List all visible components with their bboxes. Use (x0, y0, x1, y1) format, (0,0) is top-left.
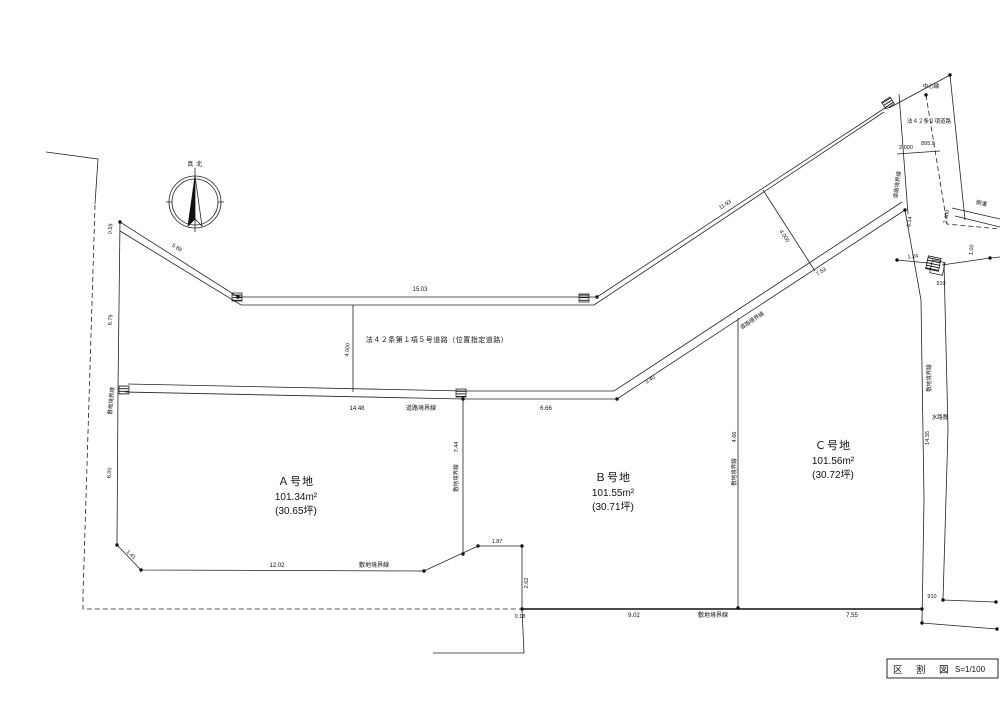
lot-c-east-boundary (905, 210, 924, 623)
bottom-right-line-upper (943, 600, 996, 602)
waterway-label: 水路敷 (932, 413, 949, 421)
site-boundary-label-south-a: 敷地境界線 (359, 561, 389, 569)
lot-b-tsubo: (30.71坪) (592, 500, 634, 513)
site-boundary-label-ab: 敷地境界線 (452, 464, 460, 492)
drawing-title: 区 割 図 (893, 664, 951, 676)
dim-ne-side: 6.14 (906, 216, 913, 227)
dim-road-width-east: 4.000 (778, 229, 791, 244)
secondary-road-cross-line (889, 75, 950, 108)
dim-waterway-bottom: 910 (927, 594, 936, 600)
dim-c-south: 7.55 (846, 613, 858, 619)
dim-ne-small: 1.00 (969, 244, 976, 255)
dim-south-run-a: 14.48 (349, 406, 365, 412)
road-north-edge-inner (120, 112, 884, 305)
lot-a-name: Ａ号地 (278, 475, 314, 488)
drawing-scale: S=1/100 (955, 665, 986, 674)
gutter-label: 側溝 (975, 198, 988, 208)
road-boundary-label-mid: 道路境界線 (406, 404, 436, 412)
dim-west-upper: 6.79 (108, 314, 115, 325)
drawing-labels: 真 北 法４２条第１項５号道路（位置指定道路） 法４２条２項道路 中心線 2.0… (106, 82, 988, 620)
road-width-dim-line-east (763, 190, 815, 271)
lot-a-tsubo: (30.65坪) (275, 504, 317, 517)
dim-b-notch: 1.87 (492, 539, 503, 545)
dim-se-lower: 3.40 (644, 375, 656, 386)
dim-west-lower: 6.00 (107, 467, 114, 478)
lot-c-tsubo: (30.72坪) (812, 468, 854, 481)
site-boundary-label-bc: 敷地境界線 (730, 458, 738, 486)
lot-boundaries (117, 210, 997, 653)
dim-ne-setback: 2.000 (899, 145, 913, 151)
dim-bc-depth: 4.66 (732, 432, 738, 443)
plot-division-drawing: 真 北 法４２条第１項５号道路（位置指定道路） 法４２条２項道路 中心線 2.0… (0, 0, 1000, 706)
secondary-road-east-line (950, 75, 965, 220)
survey-markers (119, 97, 945, 397)
site-boundary-label-south-b: 敷地境界線 (698, 611, 728, 619)
lot-a-area: 101.34m² (275, 492, 318, 503)
dim-south-run-b: 6.66 (540, 406, 552, 412)
dim-west-top: 0.59 (108, 223, 115, 234)
bottom-right-line-lower (922, 623, 997, 629)
road-south-edge-inner (128, 202, 902, 391)
secondary-road-label: 法４２条２項道路 (907, 117, 952, 125)
marker-north-mid (579, 294, 589, 302)
dim-road-width-mid: 4.000 (344, 343, 351, 357)
marker-ne-corner (926, 256, 941, 271)
road-center-line (926, 95, 1000, 229)
survey-canvas: 真 北 法４２条第１項５号道路（位置指定道路） 法４２条２項道路 中心線 2.0… (0, 0, 1000, 706)
dim-waterway-length: 14.35 (925, 431, 931, 445)
waterway-east-line (943, 263, 948, 600)
title-block: 区 割 図 S=1/100 (887, 659, 998, 678)
marker-north-east (882, 97, 895, 109)
lot-a-west-boundary (117, 222, 120, 545)
dim-a-south: 12.02 (269, 563, 285, 569)
corner-dim-line (897, 260, 928, 263)
dim-nw-diagonal: 5.89 (170, 243, 182, 254)
dim-ne-value: 895.5 (921, 141, 935, 147)
road-edges (120, 106, 905, 399)
north-label: 真 北 (187, 160, 202, 168)
lot-c-area: 101.56m² (812, 456, 855, 467)
site-boundary-label-west: 敷地境界線 (106, 386, 116, 415)
dim-se-upper: 7.53 (815, 267, 827, 278)
marker-west (119, 386, 129, 394)
dim-b-south: 9.02 (628, 613, 640, 619)
dim-ab-depth: 7.44 (454, 442, 460, 453)
north-arrow (166, 168, 224, 232)
road-boundary-label-ne: 道路境界線 (891, 170, 903, 199)
south-hook-line (433, 609, 524, 653)
dim-north-run: 15.03 (412, 287, 428, 293)
lot-b-name: Ｂ号地 (595, 471, 631, 484)
dim-waterway-top: 910 (936, 281, 945, 287)
lot-b-area: 101.55m² (592, 488, 635, 499)
dim-ne-corner: 1.24 (907, 253, 918, 260)
survey-points (115, 73, 998, 630)
dim-ne-width: 2.400 (943, 210, 951, 225)
center-line-label: 中心線 (923, 82, 940, 90)
dim-b-side: 2.62 (524, 578, 530, 589)
secondary-road-lines (889, 75, 1000, 265)
road-north-edge-outer (120, 106, 888, 297)
site-boundary-label-east: 敷地境界線 (925, 364, 933, 392)
dim-b-offset: 0.18 (515, 614, 526, 620)
road-boundary-label-diag: 道路境界線 (738, 309, 766, 331)
lot-c-name: Ｃ号地 (815, 439, 851, 452)
lot-a-south-boundary (117, 545, 522, 609)
road-designation-label: 法４２条第１項５号道路（位置指定道路） (366, 335, 509, 344)
marker-south-mid (456, 389, 466, 397)
